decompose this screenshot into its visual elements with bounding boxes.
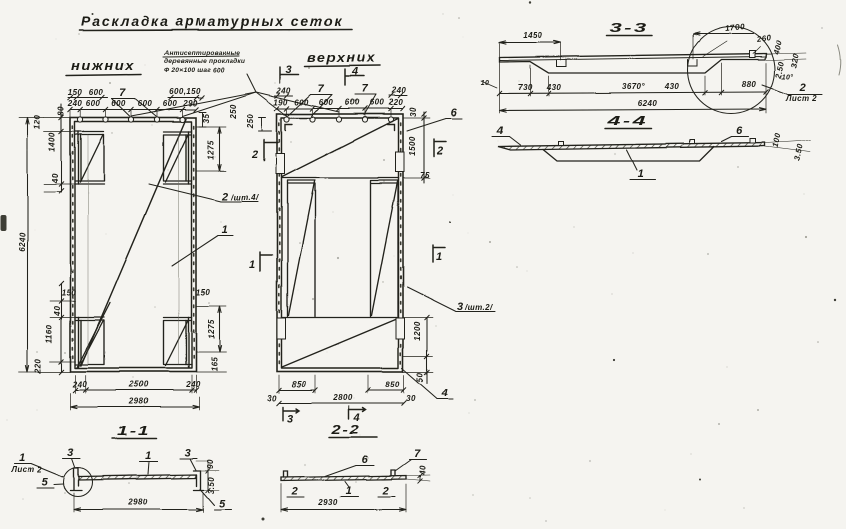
svg-text:7: 7	[414, 448, 421, 460]
svg-text:30: 30	[406, 394, 416, 403]
svg-text:3: 3	[286, 64, 293, 76]
svg-text:120: 120	[33, 115, 42, 130]
svg-text:3.50: 3.50	[792, 143, 804, 162]
svg-text:3: 3	[287, 413, 294, 425]
svg-text:3-3: 3-3	[610, 20, 649, 35]
svg-text:2: 2	[291, 486, 299, 498]
svg-text:/шт.2/: /шт.2/	[464, 303, 493, 312]
svg-text:1700: 1700	[725, 22, 745, 33]
svg-text:деревянные прокладки: деревянные прокладки	[164, 57, 245, 65]
svg-text:2980: 2980	[127, 498, 148, 507]
svg-text:1: 1	[638, 168, 645, 180]
svg-text:7: 7	[318, 83, 325, 95]
svg-text:7: 7	[120, 87, 127, 99]
svg-text:1275: 1275	[207, 319, 216, 339]
svg-text:40: 40	[51, 173, 60, 184]
svg-text:2: 2	[251, 149, 259, 161]
svg-text:165: 165	[210, 357, 219, 372]
svg-text:5: 5	[219, 498, 226, 510]
svg-text:600: 600	[345, 98, 360, 107]
svg-text:600: 600	[295, 98, 310, 107]
svg-text:290: 290	[182, 99, 198, 108]
svg-text:2: 2	[799, 82, 807, 94]
svg-text:600: 600	[86, 99, 101, 108]
svg-text:50: 50	[416, 372, 425, 382]
svg-text:600: 600	[319, 98, 334, 107]
svg-text:6240: 6240	[18, 232, 27, 252]
svg-text:430: 430	[546, 83, 562, 92]
svg-text:Ф 20×100 шаг 600: Ф 20×100 шаг 600	[164, 67, 224, 74]
svg-text:3670°: 3670°	[623, 82, 646, 91]
svg-text:600: 600	[112, 99, 127, 108]
svg-text:2-2: 2-2	[330, 422, 360, 437]
svg-text:75: 75	[420, 171, 430, 180]
svg-text:150: 150	[62, 289, 77, 298]
svg-text:2980: 2980	[128, 397, 149, 406]
svg-text:4: 4	[496, 125, 504, 137]
svg-text:600: 600	[163, 99, 178, 108]
svg-text:2: 2	[382, 485, 390, 497]
svg-text:1160: 1160	[45, 324, 54, 343]
svg-text:240: 240	[67, 99, 83, 108]
svg-text:220: 220	[388, 98, 404, 107]
svg-text:5: 5	[42, 476, 49, 488]
svg-text:1275: 1275	[207, 140, 216, 160]
svg-text:150: 150	[68, 88, 83, 97]
svg-text:2500: 2500	[128, 380, 149, 389]
svg-text:6240: 6240	[638, 99, 658, 108]
svg-text:600,150: 600,150	[169, 87, 201, 96]
svg-text:430: 430	[664, 82, 680, 91]
svg-text:600: 600	[138, 99, 153, 108]
svg-text:2: 2	[436, 145, 444, 157]
svg-text:220: 220	[34, 359, 43, 375]
svg-text:1: 1	[19, 452, 26, 464]
svg-text:1: 1	[436, 251, 443, 263]
svg-text:260: 260	[755, 33, 772, 44]
svg-text:3: 3	[68, 447, 75, 459]
svg-text:7: 7	[362, 83, 369, 95]
svg-text:250: 250	[246, 114, 255, 130]
svg-text:10°: 10°	[781, 73, 793, 81]
svg-text:1: 1	[146, 450, 153, 462]
svg-text:/шт.4/: /шт.4/	[230, 193, 259, 202]
svg-text:30: 30	[409, 107, 418, 117]
svg-text:6: 6	[362, 454, 369, 466]
svg-text:600: 600	[89, 88, 104, 97]
svg-text:1: 1	[222, 224, 229, 236]
svg-text:1-1: 1-1	[117, 423, 151, 438]
svg-text:100: 100	[771, 132, 783, 148]
svg-text:30: 30	[267, 394, 277, 403]
svg-text:250: 250	[229, 104, 238, 120]
svg-text:1: 1	[249, 259, 256, 271]
svg-text:1400: 1400	[48, 132, 57, 152]
svg-text:6: 6	[451, 107, 458, 119]
svg-text:6: 6	[737, 125, 744, 137]
svg-text:Лист 2: Лист 2	[785, 94, 817, 103]
svg-text:320: 320	[789, 52, 800, 68]
svg-text:880: 880	[742, 80, 757, 89]
svg-text:верхних: верхних	[308, 50, 377, 65]
svg-text:1500: 1500	[408, 136, 417, 156]
svg-text:40: 40	[418, 465, 427, 476]
svg-text:1200: 1200	[413, 321, 422, 341]
svg-text:нижних: нижних	[71, 58, 135, 73]
svg-text:10: 10	[481, 80, 489, 87]
svg-text:Раскладка арматурных сеток: Раскладка арматурных сеток	[81, 13, 344, 29]
svg-text:3: 3	[185, 447, 192, 459]
svg-text:850: 850	[386, 380, 401, 389]
svg-text:4: 4	[351, 66, 359, 78]
svg-text:2800: 2800	[332, 393, 353, 402]
svg-text:4-4: 4-4	[606, 113, 649, 128]
svg-text:35: 35	[202, 113, 211, 123]
svg-text:150: 150	[196, 288, 211, 297]
svg-text:40: 40	[53, 306, 62, 317]
svg-text:600: 600	[370, 98, 385, 107]
svg-text:2930: 2930	[317, 498, 338, 507]
svg-text:850: 850	[292, 380, 307, 389]
svg-text:4: 4	[441, 387, 449, 399]
svg-text:1450: 1450	[523, 31, 543, 40]
svg-text:190: 190	[274, 98, 289, 107]
svg-text:90: 90	[206, 459, 215, 469]
svg-text:240: 240	[72, 380, 88, 389]
